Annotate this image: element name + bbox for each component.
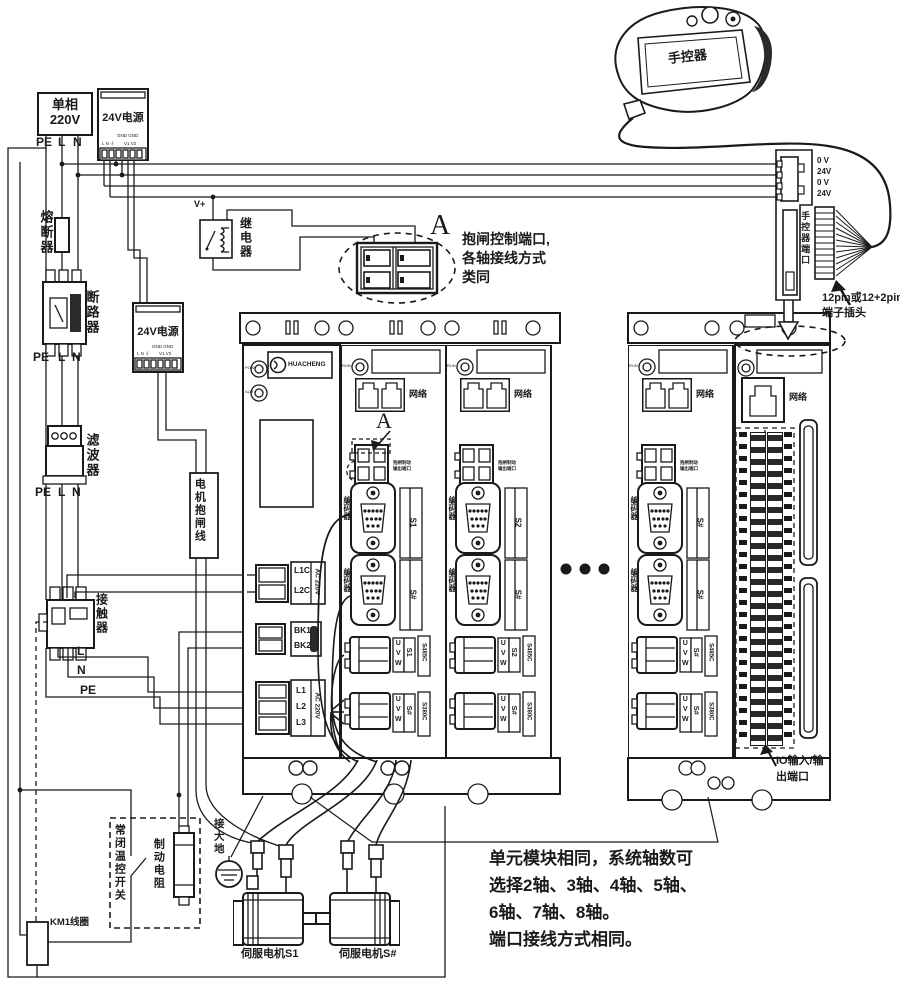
uvw-label: UVW bbox=[394, 696, 402, 726]
run-led-label: RUN bbox=[629, 364, 638, 368]
net-label: 网络 bbox=[696, 389, 714, 399]
axis-tag: S# bbox=[692, 695, 700, 725]
net-label: 网络 bbox=[789, 392, 807, 402]
pe-label: PE bbox=[33, 351, 49, 364]
psu2-pins-ln: L N ⏚ bbox=[137, 351, 150, 356]
fuse bbox=[55, 218, 69, 252]
fuse-label: 熔断器 bbox=[38, 210, 53, 255]
axis-tag: S# bbox=[692, 637, 700, 667]
wire-pe-label: PE bbox=[80, 684, 96, 697]
km1-coil-label: KM1线圈 bbox=[50, 918, 89, 929]
t1-l2c: L2C bbox=[294, 586, 310, 596]
l-label: L bbox=[58, 351, 65, 364]
axis-tag: S# bbox=[695, 507, 704, 537]
io-port-label: IO输入/输出端口 bbox=[776, 753, 824, 785]
l-label: L bbox=[58, 486, 65, 499]
io-terminal-column bbox=[784, 432, 792, 744]
axis-tag: S1 bbox=[405, 637, 413, 667]
brake-resistor-label: 制动电阻 bbox=[152, 838, 164, 890]
io-terminal-column bbox=[750, 432, 766, 746]
motor1-label: 伺服电机S1 bbox=[241, 948, 298, 960]
pin-0v-label: 0 V bbox=[817, 157, 829, 166]
wiring-diagram: 单相220V PE L N 24V电源 GND GND L N ⏚ V1 V2 … bbox=[0, 0, 900, 981]
pendant-port-label: 手控器端口 bbox=[800, 211, 810, 266]
psu2-pins-v: V1 V2 bbox=[159, 351, 171, 356]
t3-l1: L1 bbox=[296, 686, 306, 696]
t3-l2: L2 bbox=[296, 702, 306, 712]
ellipsis-dots bbox=[561, 564, 610, 575]
cable-plugs bbox=[251, 841, 383, 877]
wire-l-label: L bbox=[77, 645, 84, 658]
axis-tag: S# bbox=[510, 695, 518, 725]
conn-side-tag: S380C bbox=[707, 693, 714, 729]
right-module-group bbox=[628, 299, 845, 810]
encoder-label: 编码器 bbox=[629, 496, 638, 520]
net-label: 网络 bbox=[409, 389, 427, 399]
axis-tag: S# bbox=[513, 579, 522, 609]
net-label: 网络 bbox=[514, 389, 532, 399]
encoder-label: 编码器 bbox=[447, 496, 456, 520]
filter-label: 滤波器 bbox=[84, 433, 99, 478]
psu2-title: 24V电源 bbox=[133, 326, 183, 338]
axis-note: 单元模块相同，系统轴数可选择2轴、3轴、4轴、5轴、6轴、7轴、8轴。端口接线方… bbox=[489, 845, 697, 953]
left-module-group bbox=[240, 313, 560, 804]
axis-tag: S2 bbox=[513, 507, 522, 537]
psu2-gnd: GND GND bbox=[152, 344, 173, 349]
run-led-label: RUN bbox=[447, 364, 456, 368]
t1-ac220: AC 220V bbox=[313, 565, 320, 599]
n-label: N bbox=[73, 136, 82, 149]
pendant-cable-fan bbox=[836, 210, 872, 276]
motor2-label: 伺服电机S# bbox=[339, 948, 396, 960]
pe-label: PE bbox=[35, 486, 51, 499]
axis-tag: S2 bbox=[510, 637, 518, 667]
plug-type-label: 12pin或12+2pin端子插头 bbox=[822, 291, 900, 321]
n-label: N bbox=[72, 351, 81, 364]
thermal-switch-label: 常闭温控开关 bbox=[113, 824, 125, 902]
earth-label: 接大地 bbox=[212, 818, 224, 856]
line-filter bbox=[43, 426, 86, 484]
t3-l3: L3 bbox=[296, 718, 306, 728]
t3-ac220: AC 220V bbox=[313, 689, 320, 723]
circuit-breaker bbox=[43, 270, 86, 356]
single-phase-label: 单相220V bbox=[38, 98, 92, 127]
alm-led-label: ALM bbox=[245, 390, 253, 394]
axis-tag: S# bbox=[405, 695, 413, 725]
brake-tag: 抱闸制动输出端口 bbox=[679, 460, 699, 472]
uvw-label: UVW bbox=[499, 640, 507, 670]
note-callout bbox=[310, 797, 718, 842]
axis-tag: S1 bbox=[408, 507, 417, 537]
brake-port-callout bbox=[339, 233, 455, 303]
brake-tag: 抱闸制动输出端口 bbox=[497, 460, 517, 472]
uvw-label: UVW bbox=[499, 696, 507, 726]
encoder-label: 编码器 bbox=[342, 568, 351, 592]
t2-bk2: BK2 bbox=[294, 641, 311, 651]
relay-label: 继电器 bbox=[238, 217, 251, 259]
io-terminal-column bbox=[739, 432, 747, 744]
pin-0v-label: 0 V bbox=[817, 179, 829, 188]
conn-side-tag: S380C bbox=[420, 693, 427, 729]
pin-24v-label: 24V bbox=[817, 168, 831, 177]
conn-side-tag: S485C bbox=[707, 634, 714, 670]
encoder-label: 编码器 bbox=[629, 568, 638, 592]
contactor-label: 接触器 bbox=[94, 593, 107, 635]
pe-label: PE bbox=[36, 136, 52, 149]
psu1-pins-ln: L N ⏚ bbox=[102, 141, 115, 146]
conn-side-tag: S380C bbox=[525, 693, 532, 729]
run-led-label: RUN bbox=[342, 364, 351, 368]
l-label: L bbox=[58, 136, 65, 149]
psu1-gnd: GND GND bbox=[117, 133, 138, 138]
encoder-label: 编码器 bbox=[447, 568, 456, 592]
brake-tag: 抱闸制动输出端口 bbox=[392, 460, 412, 472]
pin-24v-label: 24V bbox=[817, 190, 831, 199]
t2-bk1: BK1 bbox=[294, 626, 311, 636]
callout-a-text: 抱闸控制端口,各轴接线方式类同 bbox=[462, 230, 550, 287]
motor-brake-line-label: 电机抱闸线 bbox=[193, 478, 205, 543]
servo-motor-2 bbox=[316, 893, 400, 945]
wire-n-label: N bbox=[77, 664, 86, 677]
uvw-label: UVW bbox=[681, 640, 689, 670]
psu1-title: 24V电源 bbox=[98, 112, 148, 124]
psu1-pins-v: V1 V2 bbox=[124, 141, 136, 146]
breaker-label: 断路器 bbox=[84, 290, 99, 335]
callout-a-letter: A bbox=[430, 210, 450, 241]
psu-24v-1 bbox=[98, 89, 148, 160]
conn-side-tag: S485C bbox=[525, 634, 532, 670]
conn-side-tag: S485C bbox=[420, 634, 427, 670]
km1-coil-box bbox=[27, 922, 48, 977]
t1-l1c: L1C bbox=[294, 566, 310, 576]
module2-a-marker: A bbox=[376, 409, 392, 434]
axis-tag: S# bbox=[695, 579, 704, 609]
huacheng-logo-text: HUACHENG bbox=[288, 361, 326, 368]
vplus-label: V+ bbox=[194, 199, 205, 209]
n-label: N bbox=[72, 486, 81, 499]
servo-motor-1 bbox=[233, 876, 317, 945]
uvw-label: UVW bbox=[681, 696, 689, 726]
axis-tag: S# bbox=[408, 579, 417, 609]
io-terminal-column bbox=[767, 432, 783, 746]
uvw-label: UVW bbox=[394, 640, 402, 670]
pow-led-label: POW bbox=[245, 366, 255, 370]
encoder-label: 编码器 bbox=[342, 496, 351, 520]
